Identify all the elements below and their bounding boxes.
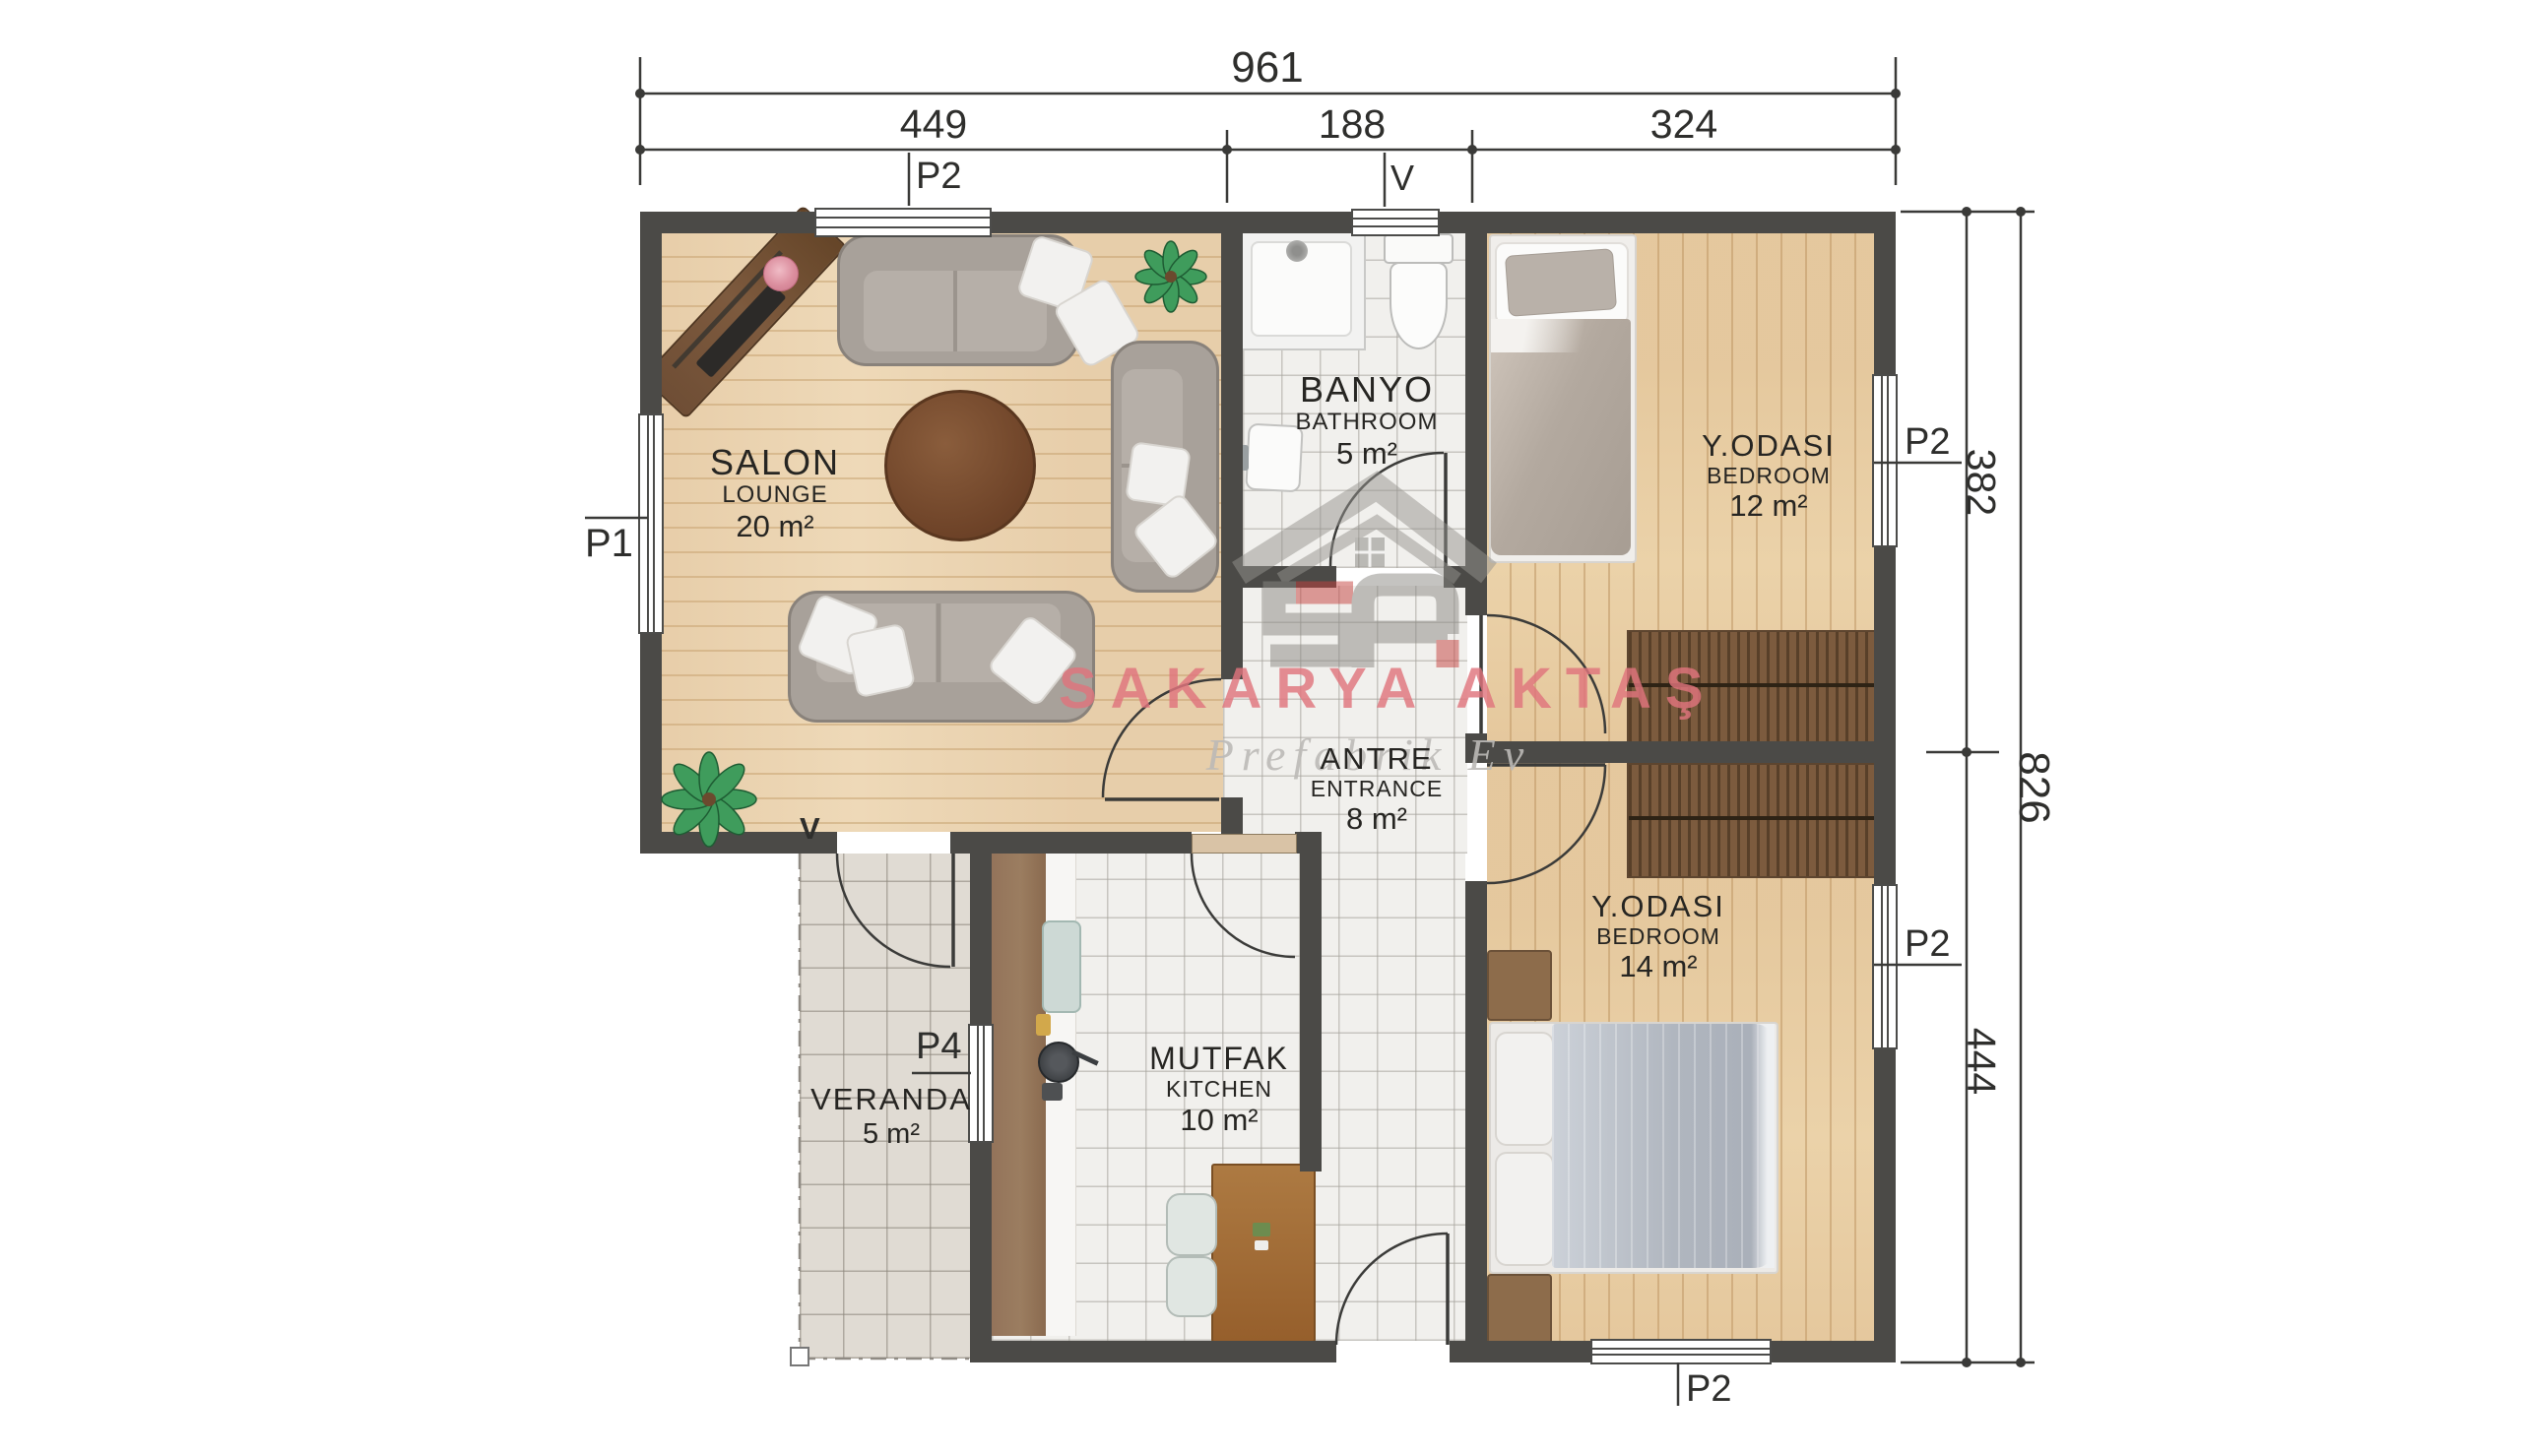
label-p2-right-lower: P2	[1905, 923, 1950, 966]
room-name-en: KITCHEN	[1121, 1077, 1318, 1103]
room-area: 20 m²	[677, 510, 873, 544]
dim-width-seg1: 449	[855, 101, 1012, 148]
label-p2-bottom: P2	[1686, 1368, 1731, 1411]
label-p1-left: P1	[585, 522, 633, 566]
room-name-en: ENTRANCE	[1278, 777, 1475, 802]
watermark-logo	[1239, 486, 1489, 667]
label-p2-right-upper: P2	[1905, 421, 1950, 464]
dim-height-seg1: 382	[1961, 413, 2004, 551]
label-p4-kitchen: P4	[916, 1026, 961, 1068]
room-name-en: LOUNGE	[677, 482, 873, 509]
door-arcs	[837, 453, 1605, 1345]
dim-width-seg3: 324	[1605, 101, 1763, 148]
veranda-label: VERANDA 5 m²	[793, 1083, 990, 1150]
room-name-tr: Y.ODASI	[1560, 890, 1757, 924]
room-area: 8 m²	[1278, 802, 1475, 837]
room-name-tr: ANTRE	[1278, 742, 1475, 777]
watermark-brand: SAKARYA AKTAŞ	[1059, 656, 1699, 722]
bedroom1-label: Y.ODASI BEDROOM 12 m²	[1670, 429, 1867, 524]
room-name-tr: Y.ODASI	[1670, 429, 1867, 464]
room-name-tr: VERANDA	[793, 1083, 990, 1117]
room-name-en: BEDROOM	[1670, 464, 1867, 489]
dim-width-total: 961	[1169, 43, 1366, 93]
bedroom2-label: Y.ODASI BEDROOM 14 m²	[1560, 890, 1757, 984]
room-area: 5 m²	[1268, 437, 1465, 472]
salon-label: SALON LOUNGE 20 m²	[677, 443, 873, 544]
floor-plan-page: { "dimensions": { "width_total": "961", …	[0, 0, 2521, 1456]
bathroom-label: BANYO BATHROOM 5 m²	[1268, 370, 1465, 472]
room-area: 10 m²	[1121, 1104, 1318, 1138]
plant-bottom-left	[662, 752, 756, 847]
label-v-veranda: V	[800, 811, 820, 847]
room-name-tr: SALON	[677, 443, 873, 482]
label-p2-top: P2	[916, 156, 961, 198]
dim-width-seg2: 188	[1273, 101, 1431, 148]
room-name-tr: MUTFAK	[1121, 1042, 1318, 1077]
room-area: 12 m²	[1670, 489, 1867, 524]
room-name-en: BEDROOM	[1560, 924, 1757, 950]
antre-label: ANTRE ENTRANCE 8 m²	[1278, 742, 1475, 837]
dim-height-seg2: 444	[1961, 992, 2004, 1130]
room-area: 14 m²	[1560, 950, 1757, 984]
room-name-en: BATHROOM	[1268, 410, 1465, 436]
dim-height-total: 826	[2015, 719, 2058, 856]
room-name-tr: BANYO	[1268, 370, 1465, 410]
label-v-top: V	[1390, 158, 1414, 199]
kitchen-label: MUTFAK KITCHEN 10 m²	[1121, 1042, 1318, 1137]
plant-top-right	[1135, 241, 1206, 312]
room-area: 5 m²	[793, 1118, 990, 1150]
